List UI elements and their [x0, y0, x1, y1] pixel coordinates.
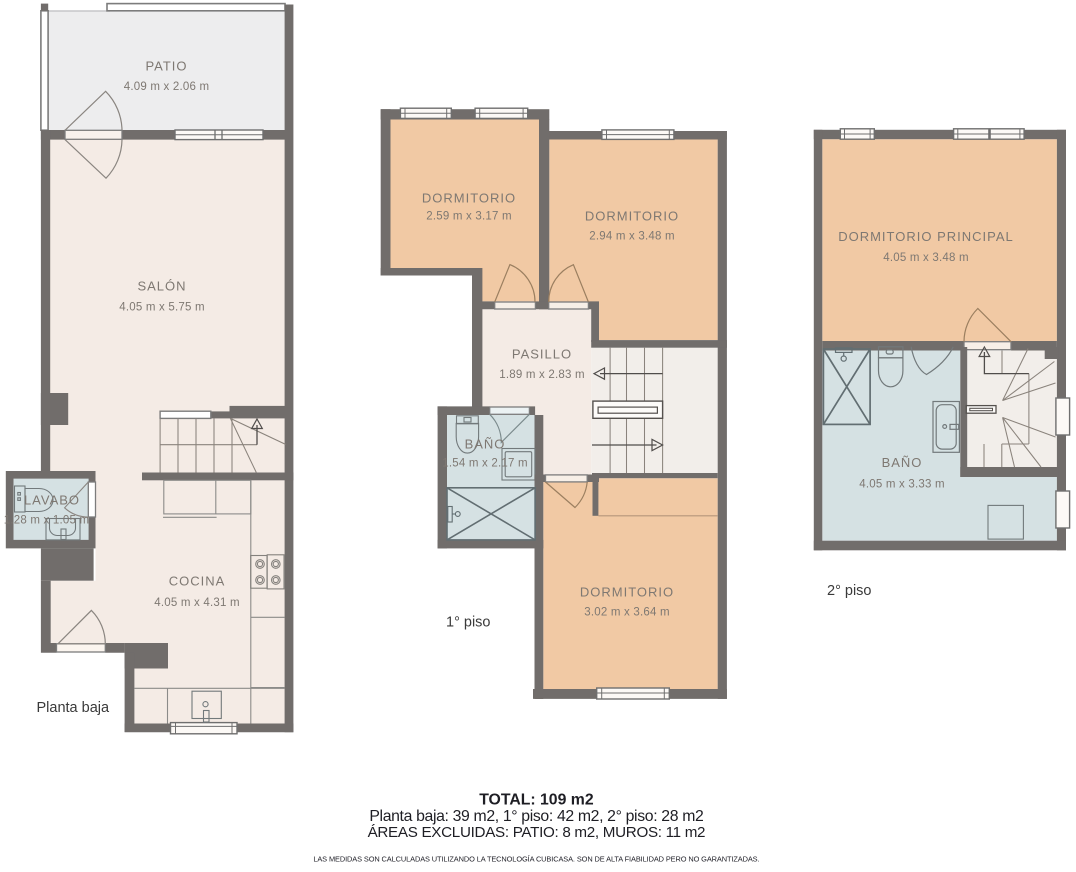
svg-text:Planta baja: 39 m2, 1° piso: 4: Planta baja: 39 m2, 1° piso: 42 m2, 2° p…	[369, 808, 703, 825]
svg-text:4.09 m x 2.06 m: 4.09 m x 2.06 m	[124, 81, 209, 93]
svg-text:1.54 m x 2.17 m: 1.54 m x 2.17 m	[442, 458, 527, 470]
svg-text:COCINA: COCINA	[169, 574, 226, 589]
svg-text:1.89 m x 2.83 m: 1.89 m x 2.83 m	[499, 369, 584, 381]
svg-text:LAVABO: LAVABO	[24, 493, 80, 508]
svg-text:1.28 m x 1.05 m: 1.28 m x 1.05 m	[4, 515, 89, 527]
svg-text:LAS MEDIDAS SON CALCULADAS UTI: LAS MEDIDAS SON CALCULADAS UTILIZANDO LA…	[313, 855, 759, 864]
svg-text:Planta baja: Planta baja	[37, 700, 110, 716]
svg-text:BAÑO: BAÑO	[882, 455, 923, 470]
svg-text:3.02 m x 3.64 m: 3.02 m x 3.64 m	[584, 607, 669, 619]
svg-text:4.05 m x 3.33 m: 4.05 m x 3.33 m	[859, 479, 944, 491]
svg-text:DORMITORIO PRINCIPAL: DORMITORIO PRINCIPAL	[838, 229, 1014, 244]
svg-text:ÁREAS EXCLUIDAS: PATIO: 8 m2,: ÁREAS EXCLUIDAS: PATIO: 8 m2, MUROS: 11 …	[368, 824, 706, 841]
svg-text:4.05 m x 5.75 m: 4.05 m x 5.75 m	[119, 302, 204, 314]
svg-text:1° piso: 1° piso	[446, 615, 491, 631]
svg-text:SALÓN: SALÓN	[137, 279, 186, 294]
svg-text:2.59 m x 3.17 m: 2.59 m x 3.17 m	[426, 211, 511, 223]
svg-text:DORMITORIO: DORMITORIO	[585, 209, 679, 224]
svg-text:TOTAL: 109 m2: TOTAL: 109 m2	[479, 792, 594, 809]
svg-text:BAÑO: BAÑO	[465, 437, 506, 452]
svg-text:4.05 m x 3.48 m: 4.05 m x 3.48 m	[883, 252, 968, 264]
svg-text:2° piso: 2° piso	[827, 583, 872, 599]
svg-text:PASILLO: PASILLO	[512, 347, 572, 362]
svg-text:PATIO: PATIO	[145, 59, 187, 74]
svg-text:4.05 m x 4.31 m: 4.05 m x 4.31 m	[154, 597, 239, 609]
svg-text:2.94 m x 3.48 m: 2.94 m x 3.48 m	[589, 231, 674, 243]
svg-text:DORMITORIO: DORMITORIO	[580, 585, 674, 600]
svg-text:DORMITORIO: DORMITORIO	[422, 191, 516, 206]
